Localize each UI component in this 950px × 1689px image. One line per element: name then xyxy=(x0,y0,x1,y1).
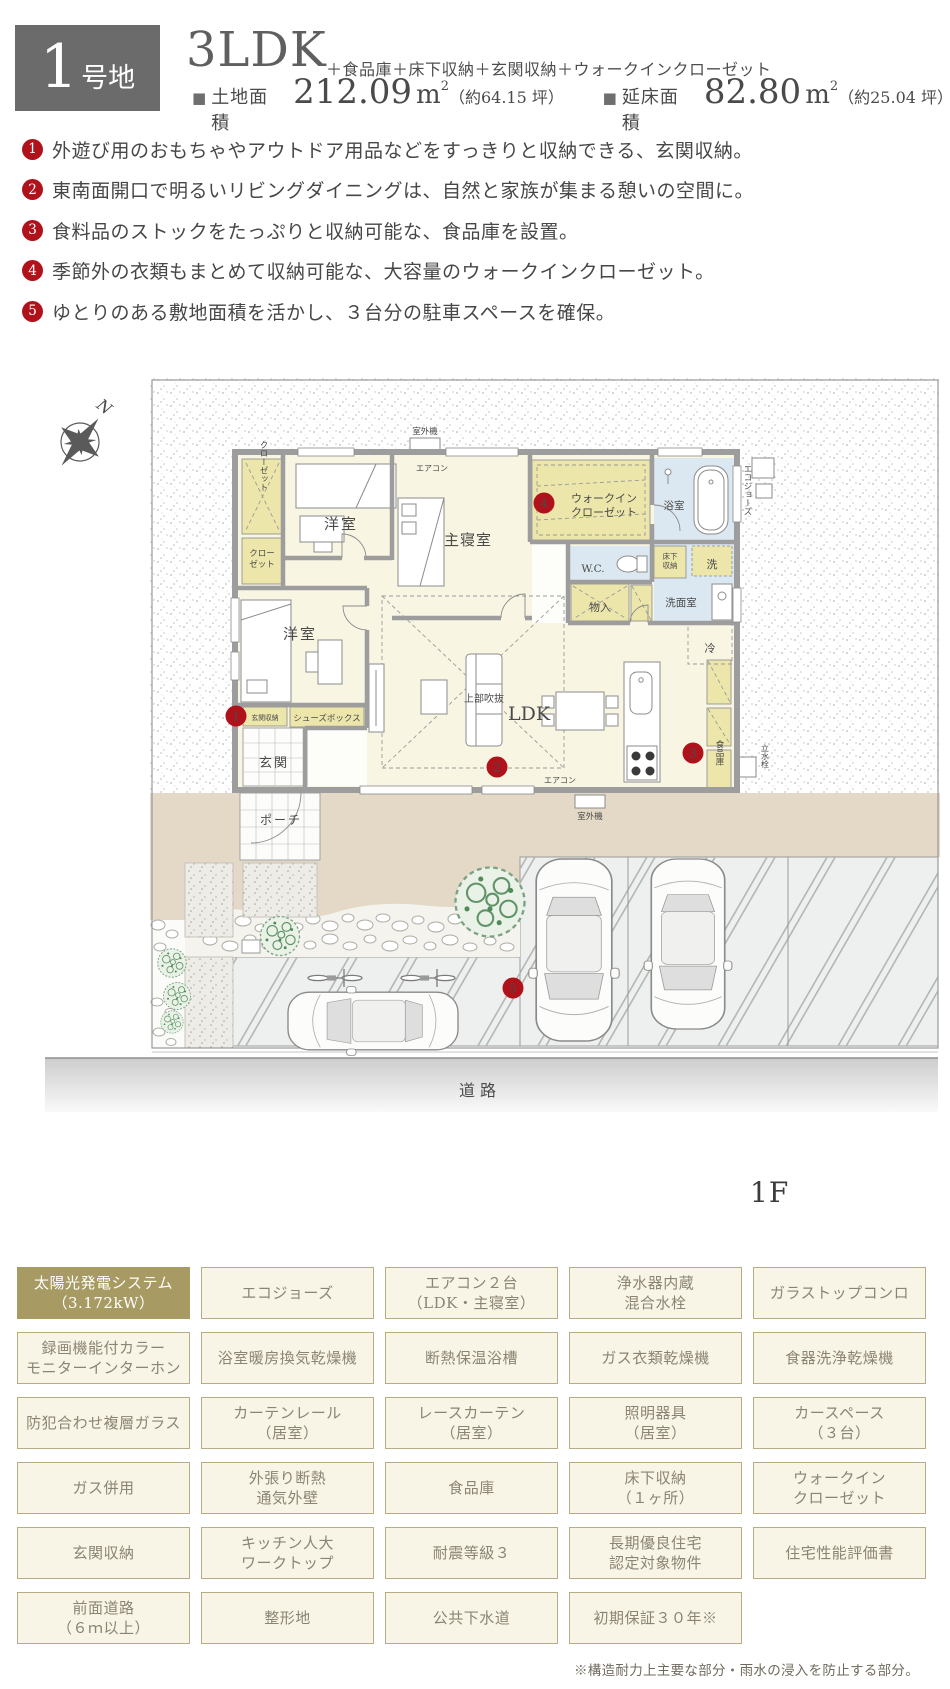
equipment-item: 録画機能付カラー モニターインターホン xyxy=(17,1332,190,1384)
floor-area-label: 延床面積 xyxy=(622,83,696,135)
land-area: ■ 土地面積 212.09 m 2 （約64.15 坪） xyxy=(192,72,561,135)
square-bullet-icon: ■ xyxy=(603,89,617,107)
room-label-laundry: 洗 xyxy=(707,558,718,571)
floor-area-unit: m xyxy=(805,80,830,110)
feature-bullet-list: 1外遊び用のおもちゃやアウトドア用品などをすっきりと収納できる、玄関収納。 2東… xyxy=(22,129,754,332)
footnote: ※構造耐力上主要な部分・雨水の浸入を防止する部分。 xyxy=(574,1659,919,1679)
svg-text:3: 3 xyxy=(689,747,697,761)
square-bullet-icon: ■ xyxy=(192,89,206,107)
land-area-label: 土地面積 xyxy=(211,83,285,135)
equipment-item: 住宅性能評価書 xyxy=(753,1527,926,1579)
bullet-number-badge: 2 xyxy=(22,179,43,200)
room-label-master-bedroom: 主寝室 xyxy=(444,531,492,549)
feature-bullet: 1外遊び用のおもちゃやアウトドア用品などをすっきりと収納できる、玄関収納。 xyxy=(22,129,754,170)
room-label-fridge: 冷 xyxy=(705,642,716,655)
bullet-text: 季節外の衣類もまとめて収納可能な、大容量のウォークインクローゼット。 xyxy=(52,257,715,284)
marker-2: 2 xyxy=(487,757,508,778)
land-area-value: 212.09 xyxy=(293,72,412,112)
lot-badge: 1号地 xyxy=(15,25,160,111)
compass-north-label: N xyxy=(92,394,116,419)
feature-bullet: 2東南面開口で明るいリビングダイニングは、自然と家族が集まる憩いの空間に。 xyxy=(22,170,754,211)
feature-bullet: 3食料品のストックをたっぷりと収納可能な、食品庫を設置。 xyxy=(22,210,754,251)
room-label-shoe-box: シューズボックス xyxy=(293,713,360,724)
marker-5: 5 xyxy=(503,978,524,999)
room-label-storage: 物入 xyxy=(589,600,611,614)
flyer-page: 1号地 3LDK ＋食品庫＋床下収納＋玄関収納＋ウォークインクローゼット ■ 土… xyxy=(0,0,950,1689)
equipment-item: レースカーテン （居室） xyxy=(385,1397,558,1449)
floor-area-value: 82.80 xyxy=(704,72,801,112)
equipment-item: 食品庫 xyxy=(385,1462,558,1514)
bullet-text: ゆとりのある敷地面積を活かし、３台分の駐車スペースを確保。 xyxy=(52,298,615,325)
marker-3: 3 xyxy=(683,743,704,764)
svg-text:5: 5 xyxy=(509,982,517,996)
room-label-entrance: 玄関 xyxy=(259,756,289,771)
equipment-item: ガス衣類乾燥機 xyxy=(569,1332,742,1384)
bullet-text: 東南面開口で明るいリビングダイニングは、自然と家族が集まる憩いの空間に。 xyxy=(52,176,754,203)
equipment-item: 食器洗浄乾燥機 xyxy=(753,1332,926,1384)
equipment-item: 床下収納 （１ヶ所） xyxy=(569,1462,742,1514)
floor-area-tsubo: （約25.04 坪） xyxy=(838,84,950,108)
feature-bullet: 4季節外の衣類もまとめて収納可能な、大容量のウォークインクローゼット。 xyxy=(22,251,754,292)
room-label-void: 上部吹抜 xyxy=(464,692,504,705)
svg-text:2: 2 xyxy=(493,761,501,775)
equipment-item: カーテンレール （居室） xyxy=(201,1397,374,1449)
label-outdoor-unit: 室外機 xyxy=(577,811,603,822)
svg-text:4: 4 xyxy=(540,497,548,511)
label-aircon: エアコン xyxy=(544,776,576,785)
floor-plan: 道路 N 洋室 洋室 主寝室 ウォークイン クローゼット 浴室 W.C. 床下 … xyxy=(0,370,950,1145)
room-label-underfloor: 床下 xyxy=(663,551,678,561)
room-label-wic: ウォークイン xyxy=(571,492,637,505)
equipment-item: 防犯合わせ複層ガラス xyxy=(17,1397,190,1449)
room-label-entrance-storage: 玄関収納 xyxy=(251,713,278,722)
room-label-ldk: LDK xyxy=(508,703,551,725)
lot-suffix: 号地 xyxy=(81,56,135,95)
marker-4: 4 xyxy=(534,493,555,514)
room-label-pantry: 食品庫 xyxy=(714,740,724,767)
room-label-closet: ゼット xyxy=(249,559,275,570)
floor-area-unit-sup: 2 xyxy=(830,79,838,94)
equipment-item: 照明器具 （居室） xyxy=(569,1397,742,1449)
equipment-item: 前面道路 （６ｍ以上） xyxy=(17,1592,190,1644)
marker-1: 1 xyxy=(226,706,247,727)
label-water-tap: 立水栓 xyxy=(761,743,770,769)
compass-icon: N xyxy=(43,394,118,480)
equipment-item: 浴室暖房換気乾燥機 xyxy=(201,1332,374,1384)
equipment-item: 耐震等級３ xyxy=(385,1527,558,1579)
bullet-number-badge: 4 xyxy=(22,260,43,281)
room-label-washroom: 洗面室 xyxy=(665,596,697,609)
equipment-item: 公共下水道 xyxy=(385,1592,558,1644)
equipment-item: 初期保証３０年※ xyxy=(569,1592,742,1644)
room-label-wic: クローゼット xyxy=(571,506,637,519)
road-label: 道路 xyxy=(459,1081,501,1100)
room-label-bathroom: 浴室 xyxy=(664,499,685,512)
equipment-item: カースペース （３台） xyxy=(753,1397,926,1449)
equipment-item: エコジョーズ xyxy=(201,1267,374,1319)
bullet-text: 外遊び用のおもちゃやアウトドア用品などをすっきりと収納できる、玄関収納。 xyxy=(52,136,753,163)
equipment-grid: 太陽光発電システム （3.172kW） エコジョーズ エアコン２台 （LDK・主… xyxy=(17,1267,926,1644)
equipment-item: ガラストップコンロ xyxy=(753,1267,926,1319)
room-label-underfloor: 収納 xyxy=(663,560,678,570)
floor-area: ■ 延床面積 82.80 m 2 （約25.04 坪） xyxy=(603,72,950,135)
road: 道路 xyxy=(45,1058,938,1112)
equipment-item: 外張り断熱 通気外壁 xyxy=(201,1462,374,1514)
room-label-western1: 洋室 xyxy=(324,515,358,533)
svg-text:1: 1 xyxy=(232,710,240,724)
room-label-closet: クロー xyxy=(249,549,275,559)
area-line: ■ 土地面積 212.09 m 2 （約64.15 坪） ■ 延床面積 82.8… xyxy=(192,72,950,135)
floor-label: 1F xyxy=(750,1176,789,1209)
equipment-item: 浄水器内蔵 混合水栓 xyxy=(569,1267,742,1319)
equipment-item: 太陽光発電システム （3.172kW） xyxy=(17,1267,190,1319)
feature-bullet: 5ゆとりのある敷地面積を活かし、３台分の駐車スペースを確保。 xyxy=(22,291,754,332)
label-eco-jozu: エコジョーズ xyxy=(742,465,752,516)
equipment-item: 整形地 xyxy=(201,1592,374,1644)
equipment-item: エアコン２台 （LDK・主寝室） xyxy=(385,1267,558,1319)
room-label-western2: 洋室 xyxy=(283,625,317,643)
equipment-item: 玄関収納 xyxy=(17,1527,190,1579)
land-area-unit: m xyxy=(416,80,441,110)
land-area-tsubo: （約64.15 坪） xyxy=(449,84,561,108)
equipment-item: 断熱保温浴槽 xyxy=(385,1332,558,1384)
room-label-wc: W.C. xyxy=(581,563,604,575)
room-label-porch: ポーチ xyxy=(260,813,302,827)
equipment-item: ガス併用 xyxy=(17,1462,190,1514)
label-outdoor-unit: 室外機 xyxy=(412,426,438,437)
bullet-number-badge: 3 xyxy=(22,220,43,241)
bullet-number-badge: 5 xyxy=(22,301,43,322)
plan-type: 3LDK xyxy=(186,22,327,78)
bullet-text: 食料品のストックをたっぷりと収納可能な、食品庫を設置。 xyxy=(52,217,579,244)
equipment-item: ウォークイン クローゼット xyxy=(753,1462,926,1514)
lot-number: 1 xyxy=(40,25,78,109)
room-label-closet-vertical: クローゼット xyxy=(258,441,268,492)
land-area-unit-sup: 2 xyxy=(441,79,449,94)
equipment-item: 長期優良住宅 認定対象物件 xyxy=(569,1527,742,1579)
label-aircon: エアコン xyxy=(416,464,448,473)
equipment-item: キッチン人大 ワークトップ xyxy=(201,1527,374,1579)
bullet-number-badge: 1 xyxy=(22,139,43,160)
